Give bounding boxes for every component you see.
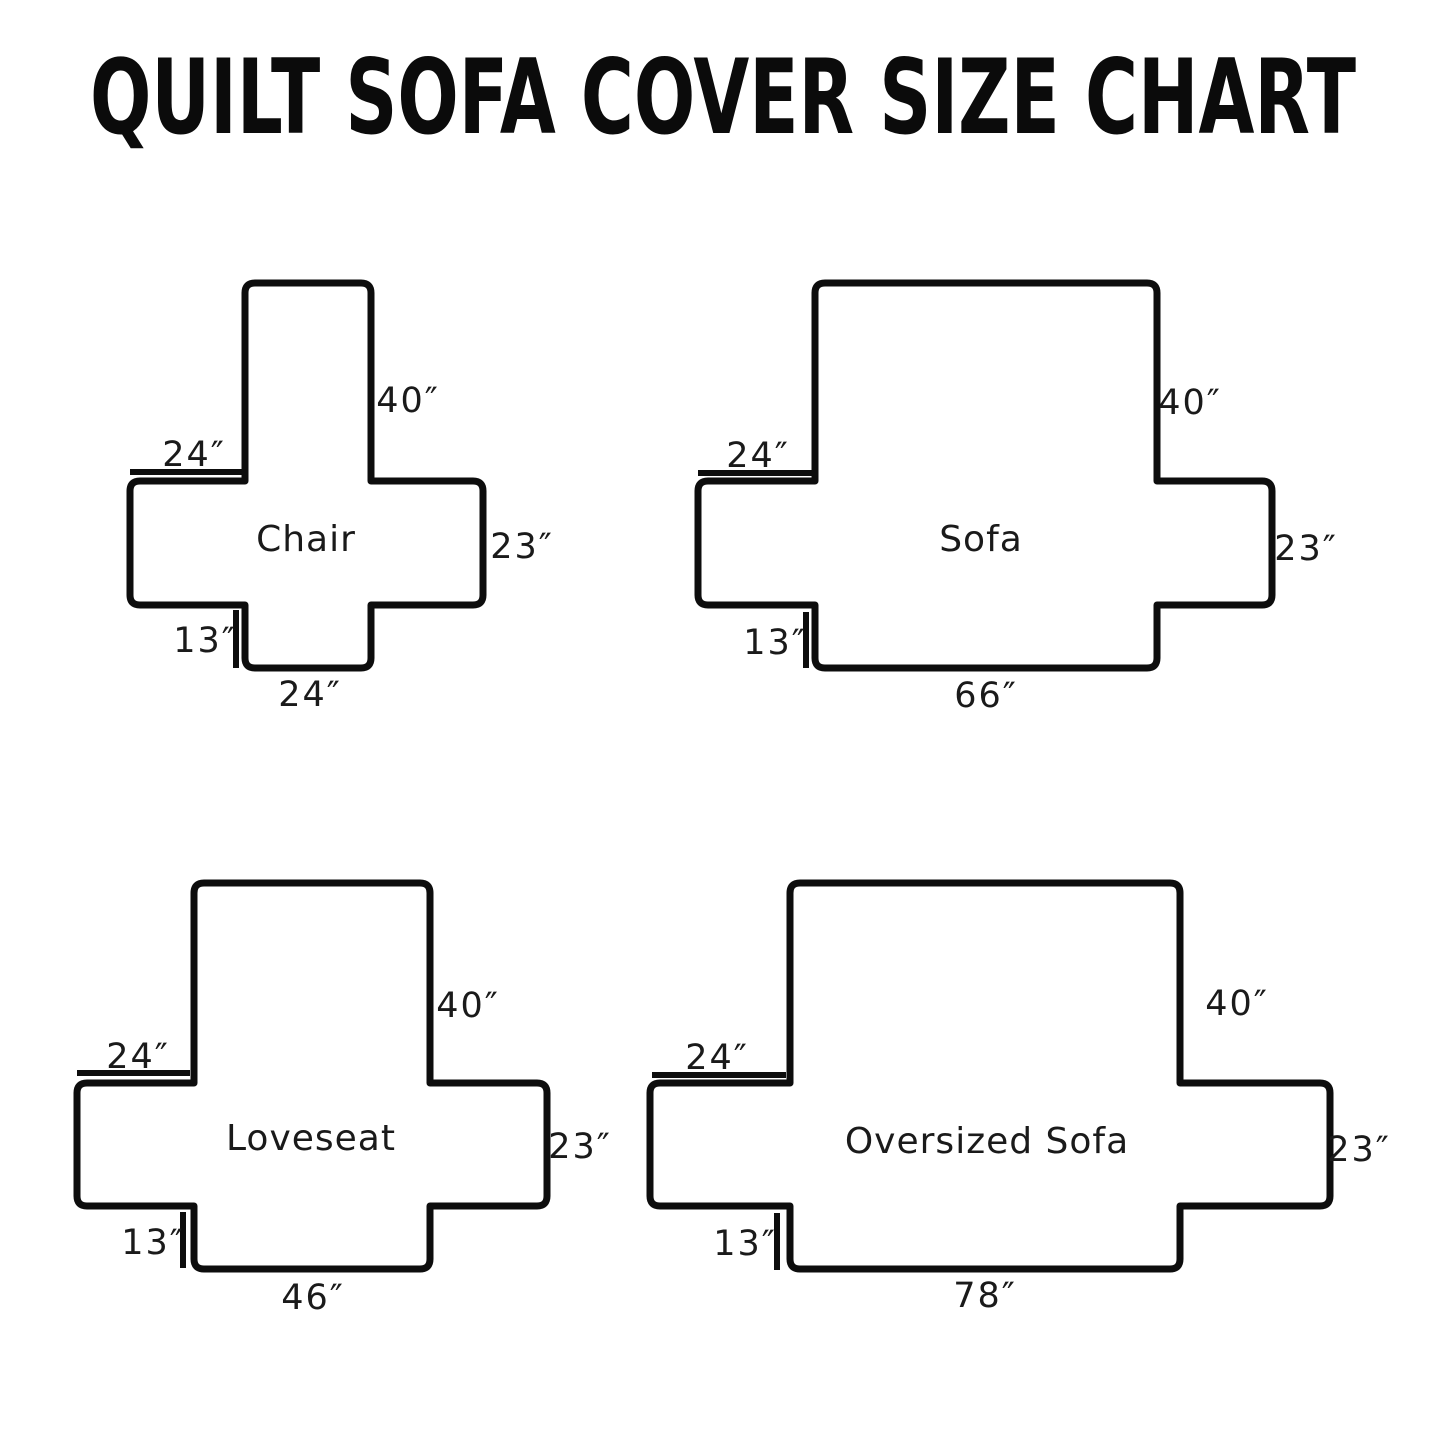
chair-diagram: 40″ 24″ Chair 23″ 13″ 24″ bbox=[130, 283, 554, 715]
oversized-sofa-back-height-label: 40″ bbox=[1205, 984, 1269, 1024]
loveseat-seat-side-label: 23″ bbox=[548, 1127, 612, 1167]
chair-back-height-label: 40″ bbox=[376, 381, 440, 421]
sofa-name-label: Sofa bbox=[939, 519, 1023, 560]
loveseat-back-height-label: 40″ bbox=[436, 986, 500, 1026]
chair-front-drop-label: 13″ bbox=[173, 621, 237, 661]
oversized-sofa-diagram: 40″ 24″ Oversized Sofa 23″ 13″ 78″ bbox=[650, 883, 1391, 1316]
sofa-front-width-label: 66″ bbox=[954, 676, 1018, 716]
loveseat-name-label: Loveseat bbox=[226, 1118, 396, 1159]
chair-front-width-label: 24″ bbox=[278, 675, 342, 715]
chair-arm-width-label: 24″ bbox=[162, 435, 226, 475]
size-chart-canvas: QUILT SOFA COVER SIZE CHART 40″ 24″ Chai… bbox=[0, 0, 1445, 1435]
loveseat-diagram: 40″ 24″ Loveseat 23″ 13″ 46″ bbox=[77, 883, 612, 1318]
page-title: QUILT SOFA COVER SIZE CHART bbox=[90, 38, 1356, 158]
loveseat-front-width-label: 46″ bbox=[281, 1278, 345, 1318]
chair-seat-side-label: 23″ bbox=[490, 527, 554, 567]
loveseat-front-drop-label: 13″ bbox=[121, 1223, 185, 1263]
sofa-back-height-label: 40″ bbox=[1158, 383, 1222, 423]
size-chart-page: QUILT SOFA COVER SIZE CHART 40″ 24″ Chai… bbox=[0, 0, 1445, 1435]
oversized-sofa-front-drop-label: 13″ bbox=[713, 1224, 777, 1264]
oversized-sofa-name-label: Oversized Sofa bbox=[845, 1121, 1129, 1162]
loveseat-arm-width-label: 24″ bbox=[106, 1037, 170, 1077]
oversized-sofa-seat-side-label: 23″ bbox=[1327, 1130, 1391, 1170]
sofa-front-drop-label: 13″ bbox=[743, 623, 807, 663]
sofa-arm-width-label: 24″ bbox=[726, 436, 790, 476]
sofa-seat-side-label: 23″ bbox=[1274, 529, 1338, 569]
oversized-sofa-front-width-label: 78″ bbox=[953, 1276, 1017, 1316]
chair-name-label: Chair bbox=[256, 519, 356, 560]
chair-outline bbox=[130, 283, 483, 668]
oversized-sofa-arm-width-label: 24″ bbox=[685, 1038, 749, 1078]
sofa-diagram: 40″ 24″ Sofa 23″ 13″ 66″ bbox=[698, 283, 1338, 716]
